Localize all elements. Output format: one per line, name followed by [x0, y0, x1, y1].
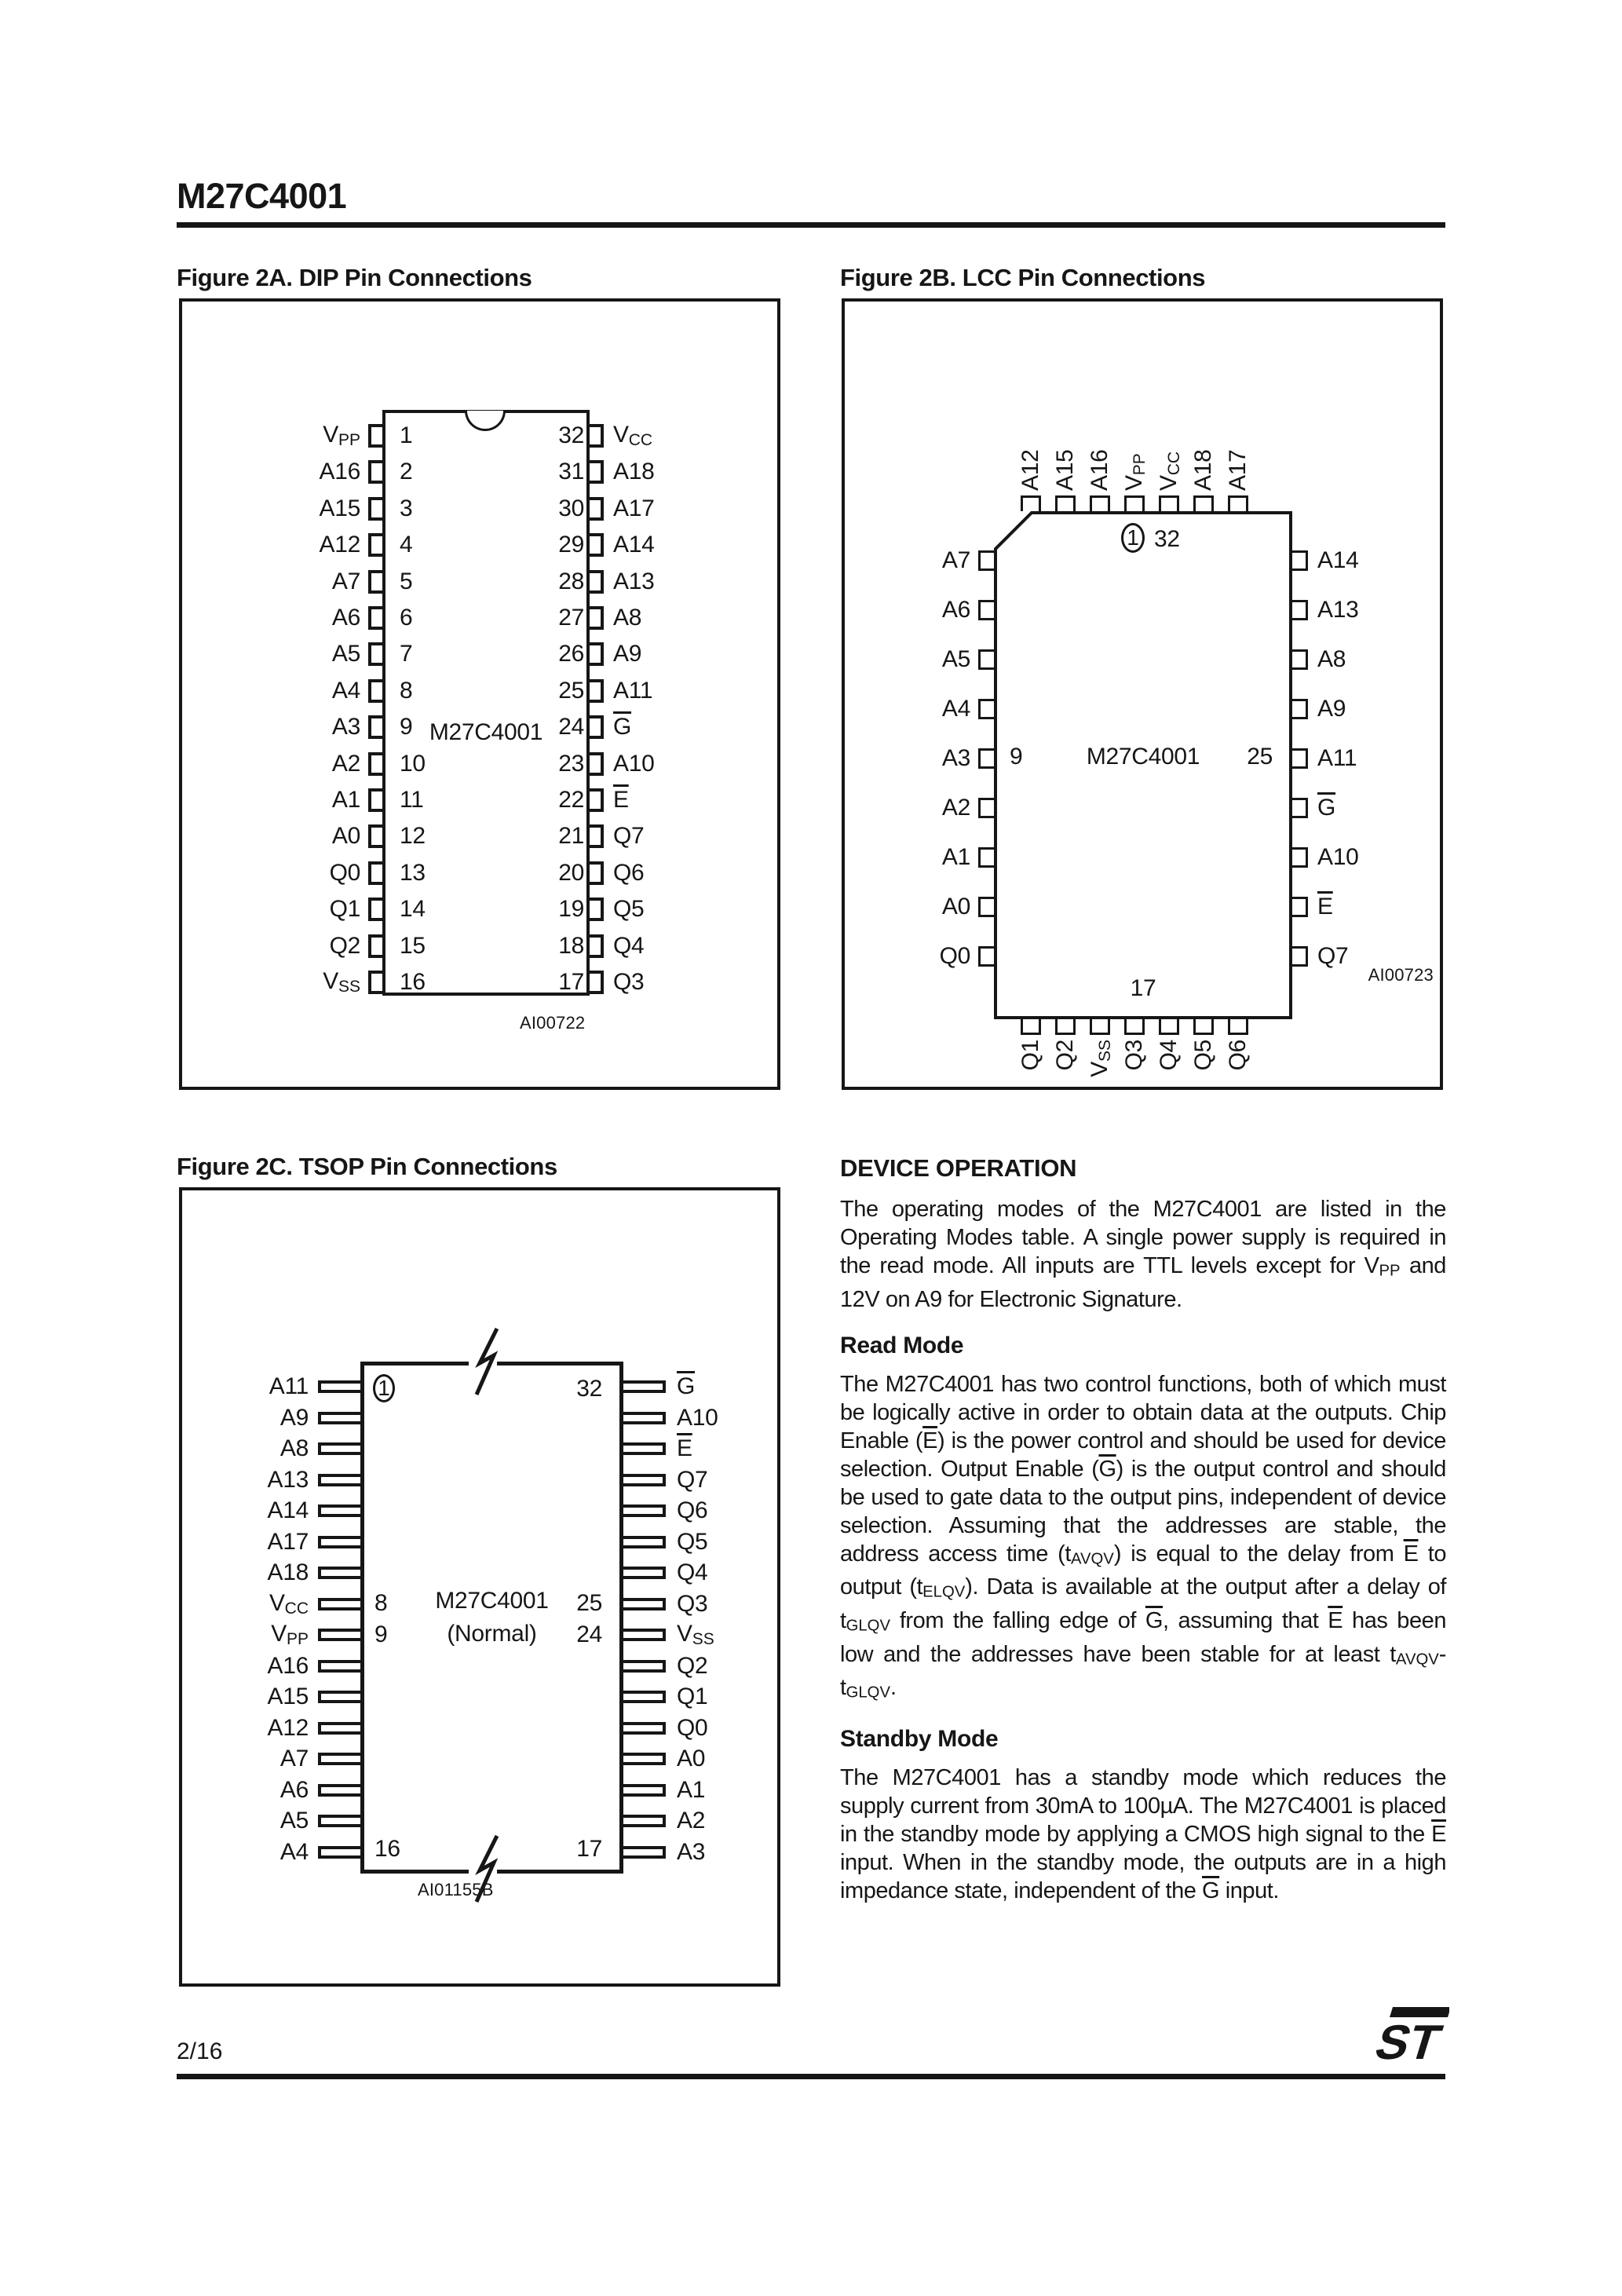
- lcc-pin: A18: [1193, 394, 1214, 511]
- pin-label: A3: [942, 745, 970, 772]
- lcc-pin-row: A3: [845, 745, 994, 772]
- lcc-pin: Q4: [1159, 1019, 1179, 1141]
- pin-label: A14: [182, 1497, 318, 1524]
- tsop-pin-row: E: [623, 1433, 784, 1464]
- lcc-pin: VPP: [1124, 394, 1145, 511]
- tsop-pin-row: A8: [182, 1433, 360, 1464]
- dip-pin-row: A16 2: [182, 455, 426, 489]
- lcc-pin-row: A11: [1292, 745, 1446, 772]
- lcc-pin-row: A8: [1292, 646, 1446, 673]
- tsop-chip-label: M27C4001: [360, 1588, 623, 1614]
- pin-number: 2: [382, 459, 426, 485]
- pin-number: 32: [543, 422, 584, 449]
- pin-label: A0: [942, 894, 970, 920]
- pin-label: G: [1317, 795, 1335, 821]
- pin-stub: [590, 606, 604, 630]
- pin-label: A6: [182, 1777, 318, 1804]
- tsop-pin-row: A13: [182, 1464, 360, 1496]
- pin-stub: [368, 752, 382, 776]
- pin-stub: [318, 1442, 360, 1455]
- pin-number: 7: [382, 641, 426, 667]
- dip-pin-row: 26 A9: [543, 637, 777, 671]
- pin-label: A1: [942, 844, 970, 871]
- pin-label: Q6: [677, 1497, 707, 1524]
- dip-pin-row: 31 A18: [543, 455, 777, 489]
- pin-number: 20: [543, 860, 584, 887]
- pin-label: A3: [677, 1839, 705, 1866]
- dip-pin-row: Q1 14: [182, 892, 426, 927]
- lcc-pin: A12: [1021, 394, 1041, 511]
- pin-stub: [623, 1598, 666, 1610]
- tsop-pin-row: Q6: [623, 1495, 784, 1526]
- dip-pin-row: A4 8: [182, 674, 426, 708]
- lcc-pin: Q3: [1124, 1019, 1145, 1141]
- pin-label: A9: [613, 641, 641, 667]
- st-logo: ST: [1366, 2004, 1449, 2071]
- pin-stub: [368, 606, 382, 630]
- pin-label: Q1: [677, 1684, 707, 1710]
- tsop-pin-row: A10: [623, 1402, 784, 1434]
- pin-label: VSS: [182, 968, 360, 996]
- pin-label: A8: [613, 605, 641, 631]
- pin-number: 8: [382, 678, 426, 704]
- pin-label: A2: [677, 1808, 705, 1834]
- pin-label: A12: [1019, 450, 1043, 491]
- pin-label: A12: [182, 532, 360, 558]
- pin-stub: [590, 752, 604, 776]
- pin-label: A15: [182, 495, 360, 522]
- pin-label: Q0: [182, 860, 360, 887]
- pin-stub: [318, 1504, 360, 1517]
- pin-label: VCC: [613, 422, 652, 450]
- pin-stub: [368, 460, 382, 484]
- pin-stub: [623, 1442, 666, 1455]
- device-operation-section: DEVICE OPERATION The operating modes of …: [840, 1154, 1446, 1913]
- dip-pin-row: 17 Q3: [543, 965, 777, 1000]
- pin-label: A8: [182, 1435, 318, 1462]
- dip-pin-row: 28 A13: [543, 565, 777, 599]
- pin-stub: [590, 460, 604, 484]
- dip-pin-row: A5 7: [182, 637, 426, 671]
- pin-label: A7: [942, 547, 970, 574]
- pin-label: A1: [677, 1777, 705, 1804]
- lcc-pin1-circle: 1: [1121, 523, 1145, 553]
- pin-stub: [590, 715, 604, 739]
- pin-stub: [1124, 1019, 1145, 1035]
- lcc-pin: A16: [1090, 394, 1110, 511]
- dip-pin-row: A15 3: [182, 492, 426, 526]
- lcc-pin: VSS: [1090, 1019, 1110, 1141]
- pin-stub: [623, 1380, 666, 1393]
- tsop-pin-row: Q4: [623, 1557, 784, 1589]
- pin-stub: [368, 533, 382, 557]
- pin-label: A17: [182, 1529, 318, 1556]
- lcc-pin-row: A1: [845, 844, 994, 871]
- pin-number: 22: [543, 787, 584, 813]
- pin-number: 12: [382, 823, 426, 850]
- pin-label: A15: [1054, 450, 1077, 491]
- pin-stub: [590, 497, 604, 521]
- pin-number: 15: [382, 933, 426, 960]
- pin-stub: [1228, 1019, 1248, 1035]
- pin-label: G: [613, 714, 631, 740]
- dip-pin-row: Q2 15: [182, 929, 426, 963]
- pin-label: A10: [1317, 844, 1358, 871]
- pin-number: 19: [543, 896, 584, 923]
- pin-stub: [978, 897, 994, 917]
- pin-stub: [1292, 748, 1308, 769]
- pin-stub: [368, 788, 382, 812]
- pin-label: Q6: [1226, 1040, 1250, 1070]
- header-rule: [177, 222, 1445, 228]
- tsop-pin16-number: 16: [374, 1836, 400, 1863]
- pin-stub: [978, 847, 994, 868]
- datasheet-page: { "page": { "part_number": "M27C4001", "…: [0, 0, 1622, 2296]
- lcc-pin: Q5: [1193, 1019, 1214, 1141]
- tsop-pin-row: A12: [182, 1713, 360, 1744]
- page-number: 2/16: [177, 2038, 222, 2065]
- pin-label: E: [613, 787, 629, 813]
- lcc-pin-row: Q0: [845, 943, 994, 970]
- lcc-pin17-number: 17: [994, 975, 1292, 1002]
- pin-number: 25: [543, 678, 584, 704]
- pin-stub: [318, 1412, 360, 1424]
- pin-stub: [590, 533, 604, 557]
- pin-stub: [318, 1846, 360, 1859]
- tsop-pin1-circle: 1: [373, 1374, 395, 1402]
- pin-number: 11: [382, 787, 426, 813]
- pin-stub: [590, 898, 604, 921]
- figure-2c-code: AI01155B: [418, 1880, 494, 1900]
- tsop-pin-row: VPP: [182, 1619, 360, 1651]
- dip-chip-label: M27C4001: [382, 719, 590, 746]
- lcc-pin-row: A4: [845, 696, 994, 722]
- pin-number: 6: [382, 605, 426, 631]
- pin-stub: [368, 642, 382, 666]
- pin-stub: [1124, 495, 1145, 511]
- tsop-pin-row: Q7: [623, 1464, 784, 1496]
- pin-stub: [590, 679, 604, 703]
- pin-number: 4: [382, 532, 426, 558]
- dip-pin-row: A1 11: [182, 783, 426, 817]
- tsop-pin-row: Q3: [623, 1589, 784, 1620]
- tsop-pin-row: A16: [182, 1651, 360, 1682]
- pin-label: A3: [182, 714, 360, 740]
- pin-label: A4: [182, 1839, 318, 1866]
- pin-label: A11: [182, 1373, 318, 1400]
- pin-stub: [368, 971, 382, 994]
- pin-stub: [590, 824, 604, 848]
- lcc-pin-row: A9: [1292, 696, 1446, 722]
- dip-pin-row: VSS 16: [182, 965, 426, 1000]
- pin-label: A4: [942, 696, 970, 722]
- pin-label: VSS: [1088, 1040, 1112, 1077]
- pin-stub: [368, 824, 382, 848]
- tsop-pin-row: A15: [182, 1681, 360, 1713]
- pin-label: A16: [182, 1653, 318, 1680]
- pin-stub: [318, 1722, 360, 1735]
- read-mode-paragraph: The M27C4001 has two control functions, …: [840, 1370, 1446, 1707]
- pin-label: A18: [613, 459, 654, 485]
- dip-pin-row: A0 12: [182, 819, 426, 854]
- pin-stub: [318, 1536, 360, 1548]
- pin-stub: [978, 798, 994, 818]
- pin-label: A7: [182, 569, 360, 595]
- pin-stub: [1159, 1019, 1179, 1035]
- pin-label: Q1: [1019, 1040, 1043, 1070]
- pin-number: 13: [382, 860, 426, 887]
- tsop-chip-sublabel: (Normal): [360, 1621, 623, 1647]
- pin-label: A10: [613, 751, 654, 777]
- device-operation-heading: DEVICE OPERATION: [840, 1154, 1446, 1183]
- pin-stub: [368, 679, 382, 703]
- pin-stub: [1021, 495, 1041, 511]
- pin-number: 17: [543, 969, 584, 996]
- pin-label: A14: [1317, 547, 1358, 574]
- pin-label: A9: [1317, 696, 1346, 722]
- pin-label: A7: [182, 1746, 318, 1772]
- pin-stub: [318, 1815, 360, 1827]
- pin-stub: [1292, 847, 1308, 868]
- pin-label: E: [677, 1435, 692, 1462]
- pin-stub: [623, 1474, 666, 1486]
- figure-2a-title: Figure 2A. DIP Pin Connections: [177, 264, 532, 292]
- pin-label: A10: [677, 1405, 718, 1431]
- pin-label: VPP: [182, 422, 360, 450]
- pin-number: 21: [543, 823, 584, 850]
- tsop-pin-row: A5: [182, 1805, 360, 1837]
- pin-stub: [1159, 495, 1179, 511]
- pin-stub: [318, 1784, 360, 1797]
- pin-label: A6: [942, 597, 970, 623]
- pin-label: E: [1317, 894, 1333, 920]
- lcc-pin-row: G: [1292, 795, 1446, 821]
- figure-2b-code: AI00723: [1284, 965, 1434, 985]
- pin-label: A17: [1226, 450, 1250, 491]
- dip-pin-row: 22 E: [543, 783, 777, 817]
- pin-stub: [1055, 1019, 1076, 1035]
- pin-label: Q6: [613, 860, 644, 887]
- tsop-pin-row: A3: [623, 1837, 784, 1868]
- dip-pin-row: A2 10: [182, 747, 426, 781]
- pin-number: 29: [543, 532, 584, 558]
- st-logo-text: ST: [1369, 2016, 1448, 2069]
- pin-label: A11: [613, 678, 652, 704]
- pin-label: Q4: [1157, 1040, 1181, 1070]
- pin-stub: [1055, 495, 1076, 511]
- pin-number: 18: [543, 933, 584, 960]
- tsop-top-break-mark: [461, 1325, 511, 1399]
- pin-label: Q7: [613, 823, 644, 850]
- footer-rule: [177, 2074, 1445, 2079]
- tsop-pin-row: A14: [182, 1495, 360, 1526]
- pin-stub: [590, 861, 604, 885]
- pin-stub: [623, 1722, 666, 1735]
- pin-label: A5: [182, 641, 360, 667]
- pin-label: A15: [182, 1684, 318, 1710]
- dip-pin-row: A6 6: [182, 601, 426, 635]
- pin-label: A2: [942, 795, 970, 821]
- pin-label: A16: [1088, 450, 1112, 491]
- pin-number: 14: [382, 896, 426, 923]
- pin-stub: [318, 1567, 360, 1579]
- tsop-pin-row: VCC: [182, 1589, 360, 1620]
- pin-label: Q7: [677, 1467, 707, 1493]
- pin-number: 3: [382, 495, 426, 522]
- pin-stub: [318, 1660, 360, 1673]
- pin-label: A0: [677, 1746, 705, 1772]
- figure-2a-box: VPP 1 A16 2 A15 3 A12 4 A7 5 A6: [179, 298, 780, 1090]
- pin-label: G: [677, 1373, 695, 1400]
- pin-number: 27: [543, 605, 584, 631]
- pin-label: A18: [182, 1559, 318, 1586]
- pin-stub: [590, 642, 604, 666]
- pin-stub: [1193, 1019, 1214, 1035]
- pin-label: Q3: [677, 1591, 707, 1618]
- lcc-pin-row: A5: [845, 646, 994, 673]
- dip-pin-row: 27 A8: [543, 601, 777, 635]
- pin-stub: [623, 1629, 666, 1641]
- lcc-pin-row: E: [1292, 894, 1446, 920]
- pin-label: A5: [942, 646, 970, 673]
- pin-stub: [978, 550, 994, 571]
- tsop-pin-row: A18: [182, 1557, 360, 1589]
- pin-stub: [590, 934, 604, 958]
- pin-stub: [623, 1846, 666, 1859]
- pin-label: VCC: [182, 1590, 318, 1618]
- pin-label: VCC: [1157, 452, 1181, 491]
- pin-stub: [368, 424, 382, 448]
- pin-stub: [978, 600, 994, 620]
- dip-pin-row: 21 Q7: [543, 819, 777, 854]
- dip-pin-row: A7 5: [182, 565, 426, 599]
- pin-stub: [1292, 649, 1308, 670]
- pin-label: VPP: [1123, 453, 1146, 491]
- pin-label: A12: [182, 1715, 318, 1742]
- pin-stub: [978, 748, 994, 769]
- tsop-pin-row: G: [623, 1371, 784, 1402]
- pin-stub: [590, 424, 604, 448]
- tsop-pin-row: A7: [182, 1743, 360, 1775]
- pin-label: A13: [182, 1467, 318, 1493]
- tsop-pin-row: Q1: [623, 1681, 784, 1713]
- pin-stub: [318, 1380, 360, 1393]
- pin-stub: [590, 570, 604, 594]
- pin-stub: [1292, 946, 1308, 967]
- pin-label: A13: [613, 569, 654, 595]
- pin-label: A4: [182, 678, 360, 704]
- pin-number: 1: [382, 422, 426, 449]
- pin-stub: [368, 898, 382, 921]
- pin-stub: [1292, 699, 1308, 719]
- pin-stub: [1021, 1019, 1041, 1035]
- figure-2b-box: A12 A15 A16 VPP VCC A18 A17: [842, 298, 1443, 1090]
- lcc-pin: A17: [1228, 394, 1248, 511]
- pin-number: 10: [382, 751, 426, 777]
- dip-pin-row: 30 A17: [543, 492, 777, 526]
- pin-stub: [368, 861, 382, 885]
- pin-number: 23: [543, 751, 584, 777]
- figure-2a-code: AI00722: [520, 1013, 585, 1033]
- pin-stub: [623, 1567, 666, 1579]
- lcc-pin-row: A14: [1292, 547, 1446, 574]
- pin-stub: [623, 1784, 666, 1797]
- pin-label: A17: [613, 495, 654, 522]
- tsop-pin-row: A17: [182, 1526, 360, 1558]
- pin-label: Q4: [613, 933, 644, 960]
- dip-pin-row: 18 Q4: [543, 929, 777, 963]
- lcc-pin-row: A2: [845, 795, 994, 821]
- tsop-pin-row: VSS: [623, 1619, 784, 1651]
- pin-label: Q3: [1123, 1040, 1146, 1070]
- pin-label: A14: [613, 532, 654, 558]
- pin-label: Q3: [613, 969, 644, 996]
- dip-pin-row: A12 4: [182, 528, 426, 562]
- pin-label: A6: [182, 605, 360, 631]
- pin-number: 28: [543, 569, 584, 595]
- pin-stub: [368, 570, 382, 594]
- pin-stub: [1228, 495, 1248, 511]
- tsop-pin-row: Q5: [623, 1526, 784, 1558]
- pin-stub: [623, 1536, 666, 1548]
- lcc-pin: Q1: [1021, 1019, 1041, 1141]
- lcc-pin: Q6: [1228, 1019, 1248, 1141]
- figure-2b-title: Figure 2B. LCC Pin Connections: [840, 264, 1205, 292]
- pin-number: 5: [382, 569, 426, 595]
- lcc-pin: VCC: [1159, 394, 1179, 511]
- tsop-pin-row: A2: [623, 1805, 784, 1837]
- lcc-pin-row: A13: [1292, 597, 1446, 623]
- lcc-pin-row: A0: [845, 894, 994, 920]
- pin-stub: [318, 1753, 360, 1765]
- lcc-pin32-number: 32: [1154, 526, 1180, 553]
- figure-2c-title: Figure 2C. TSOP Pin Connections: [177, 1153, 557, 1181]
- pin-label: A5: [182, 1808, 318, 1834]
- pin-stub: [368, 934, 382, 958]
- pin-label: Q5: [613, 896, 644, 923]
- pin-number: 26: [543, 641, 584, 667]
- pin-label: Q0: [677, 1715, 707, 1742]
- pin-label: A13: [1317, 597, 1358, 623]
- pin-stub: [590, 971, 604, 994]
- pin-label: A0: [182, 823, 360, 850]
- standby-mode-paragraph: The M27C4001 has a standby mode which re…: [840, 1764, 1446, 1905]
- tsop-pin17-number: 17: [516, 1836, 602, 1863]
- pin-stub: [623, 1815, 666, 1827]
- tsop-pin32-number: 32: [516, 1376, 602, 1402]
- tsop-pin-row: Q2: [623, 1651, 784, 1682]
- pin-stub: [318, 1474, 360, 1486]
- dip-pin-row: 20 Q6: [543, 856, 777, 890]
- pin-stub: [590, 788, 604, 812]
- read-mode-heading: Read Mode: [840, 1333, 1446, 1359]
- dip-pin-row: 25 A11: [543, 674, 777, 708]
- pin-number: 31: [543, 459, 584, 485]
- pin-label: A8: [1317, 646, 1346, 673]
- device-operation-intro: The operating modes of the M27C4001 are …: [840, 1195, 1446, 1314]
- lcc-pin25-number: 25: [1186, 744, 1273, 770]
- pin-label: A16: [182, 459, 360, 485]
- pin-stub: [1292, 550, 1308, 571]
- tsop-chip-outline: [360, 1362, 623, 1874]
- figure-2c-box: A11 A9 A8 A13 A14 A17 A18 VCC: [179, 1187, 780, 1987]
- pin-stub: [1090, 1019, 1110, 1035]
- tsop-pin-row: A1: [623, 1775, 784, 1806]
- pin-stub: [318, 1691, 360, 1703]
- pin-stub: [1292, 897, 1308, 917]
- pin-stub: [318, 1629, 360, 1641]
- tsop-pin-row: A9: [182, 1402, 360, 1434]
